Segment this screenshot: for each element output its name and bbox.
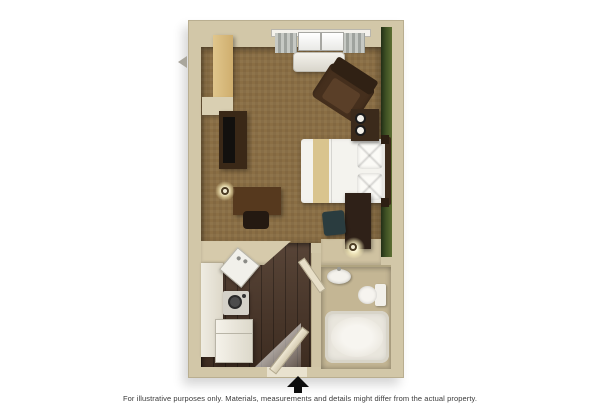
bed-seam (331, 139, 332, 203)
floor-plan-page: For illustrative purposes only. Material… (0, 0, 600, 420)
closet (213, 35, 233, 97)
desk-chair (243, 211, 269, 229)
toilet-bowl (358, 286, 377, 304)
floor-plan (188, 20, 404, 378)
headboard (385, 137, 391, 205)
teal-side-chair (322, 210, 346, 236)
curtain-right (343, 33, 365, 53)
window-pane (321, 32, 344, 51)
lamp-ring-icon (355, 113, 366, 124)
refrigerator (215, 319, 253, 363)
window-pane (298, 32, 321, 51)
bathtub (325, 311, 389, 363)
curtain-left (275, 33, 297, 53)
arrow-stem (294, 386, 302, 393)
desk-lamp-icon (215, 181, 235, 201)
pillow (357, 142, 383, 169)
entrance-arrow-icon (286, 376, 310, 394)
bathroom-sink (327, 269, 351, 284)
cooktop (223, 291, 249, 315)
wall-notch (178, 56, 187, 68)
nightstand (351, 109, 379, 141)
bedpost (381, 198, 389, 207)
lamp-ring-icon (355, 125, 366, 136)
bed-accent-stripe (313, 139, 329, 203)
bedpost (381, 135, 389, 144)
television (223, 117, 235, 163)
disclaimer-text: For illustrative purposes only. Material… (0, 394, 600, 403)
floor-lamp-icon (343, 237, 365, 259)
